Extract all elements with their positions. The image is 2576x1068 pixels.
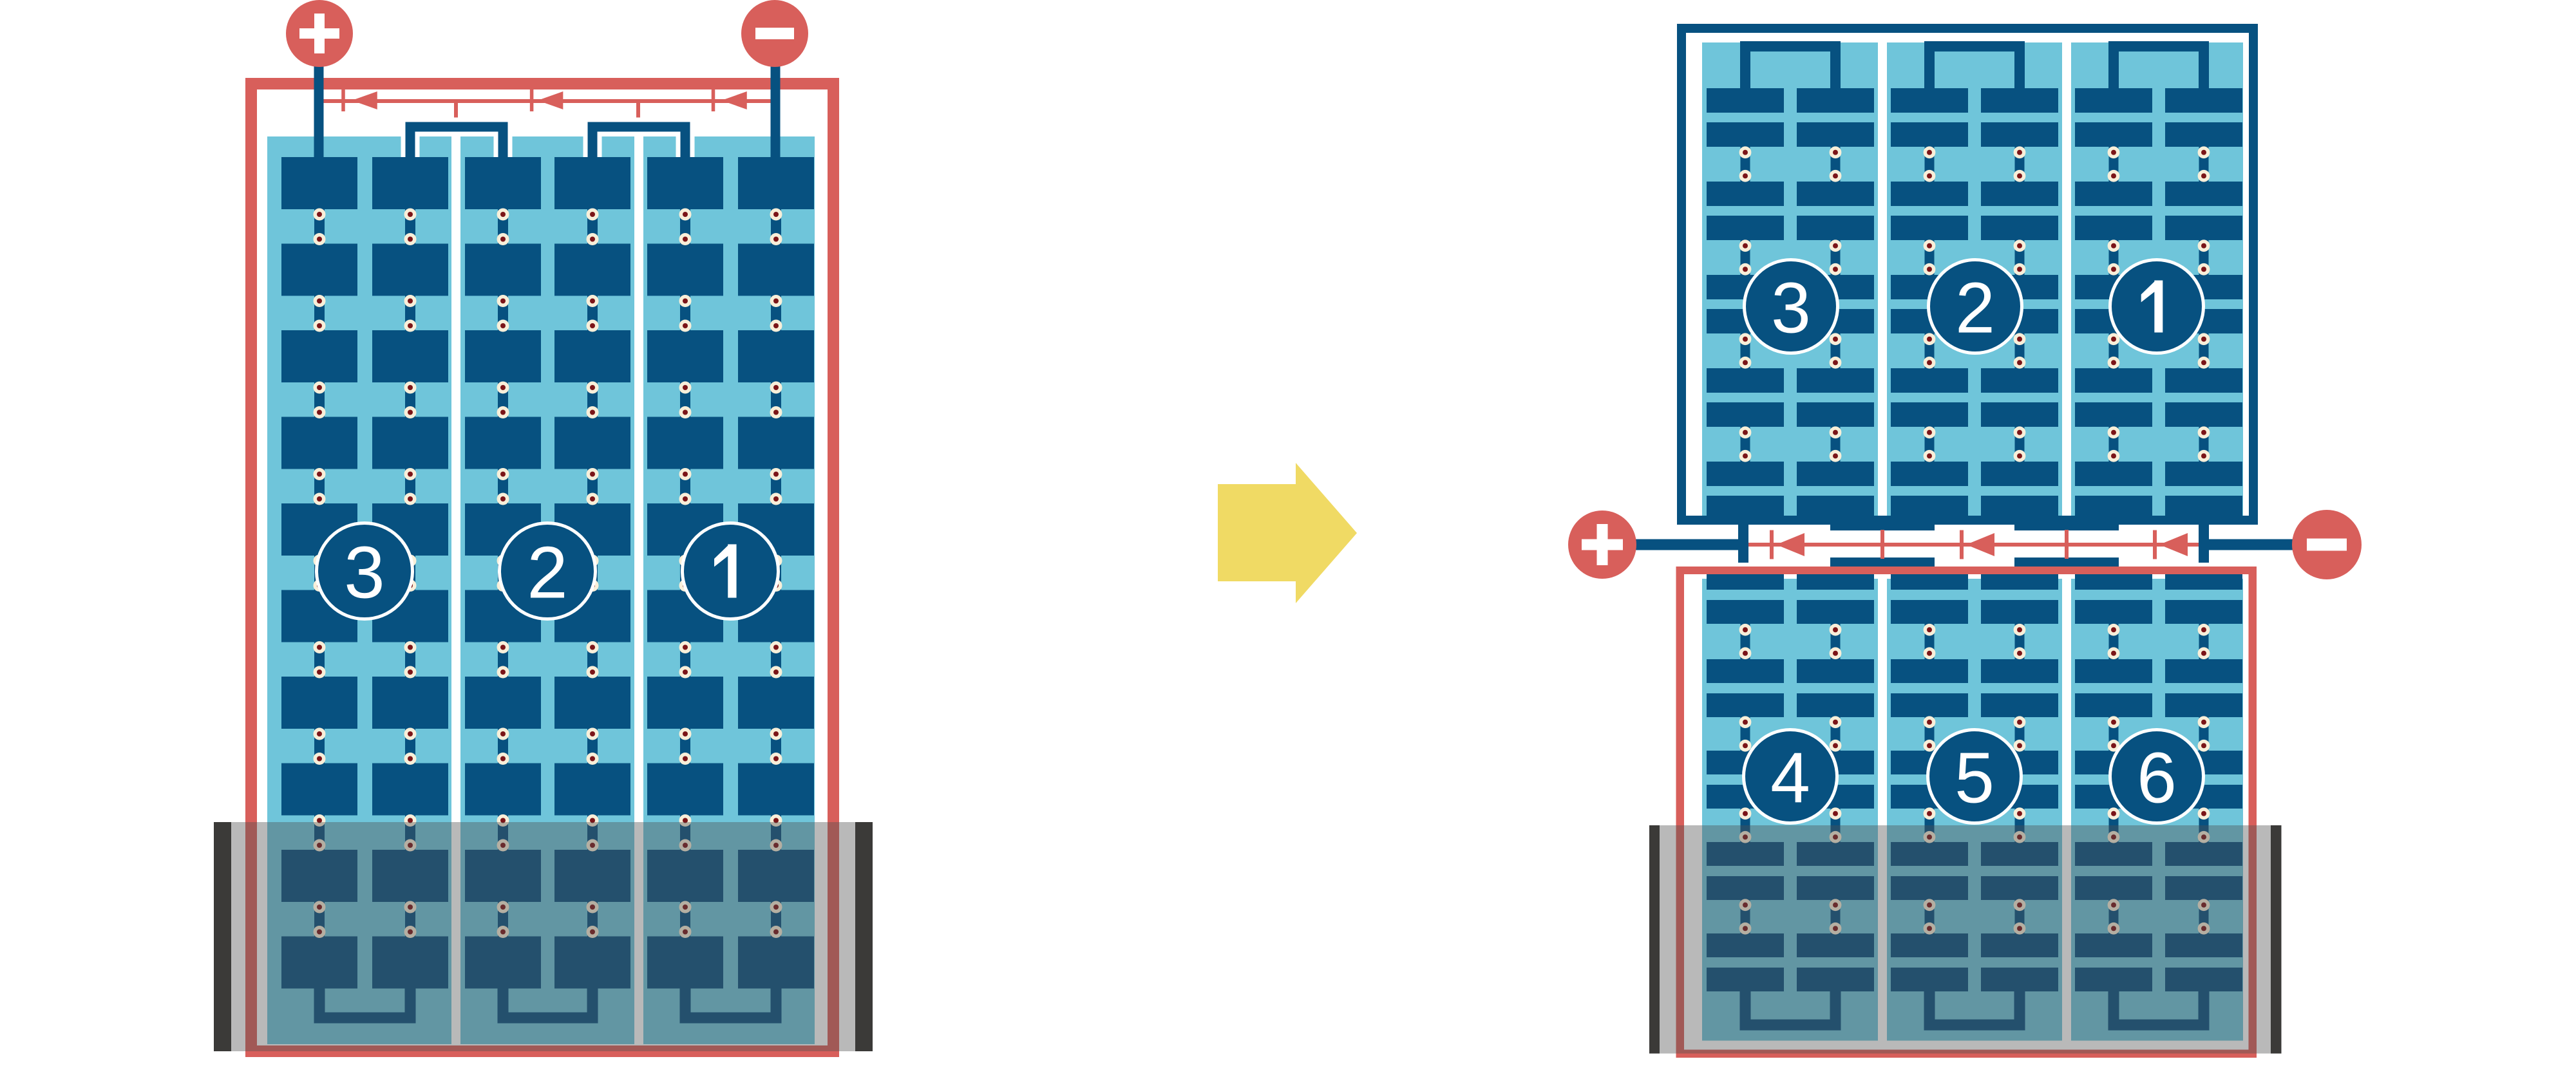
svg-text:2: 2 (1955, 268, 1995, 348)
svg-text:5: 5 (1955, 738, 1994, 818)
svg-text:2: 2 (527, 532, 567, 614)
svg-text:6: 6 (2137, 738, 2177, 818)
svg-text:4: 4 (1770, 738, 1810, 818)
svg-text:3: 3 (1771, 268, 1811, 348)
svg-text:3: 3 (344, 532, 384, 614)
